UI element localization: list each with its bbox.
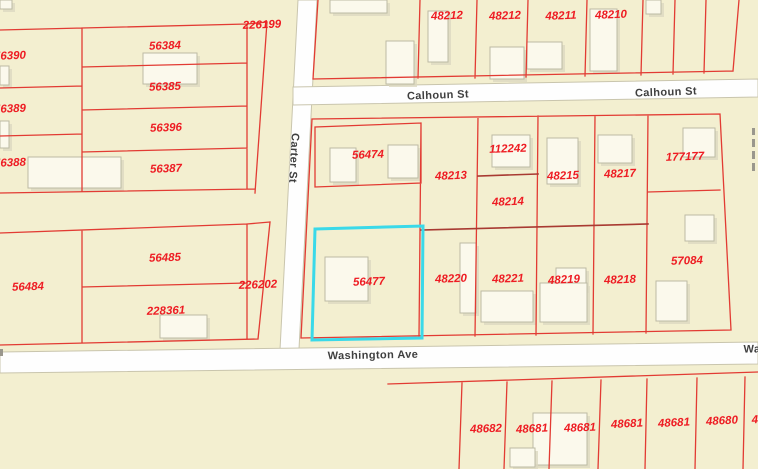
parcel-label-56384[interactable]: 56384 bbox=[149, 41, 181, 54]
parcel-label-56477[interactable]: 56477 bbox=[353, 277, 385, 290]
parcel-label-56389[interactable]: 56389 bbox=[0, 104, 26, 117]
parcel-label-48213[interactable]: 48213 bbox=[435, 171, 467, 184]
street-label-calhoun-st: Calhoun St bbox=[635, 86, 697, 99]
parcel-label-48210[interactable]: 48210 bbox=[595, 10, 627, 23]
parcel-label-48681[interactable]: 48681 bbox=[658, 417, 691, 430]
parcel-label-57084[interactable]: 57084 bbox=[671, 256, 703, 269]
parcel-label-48221[interactable]: 48221 bbox=[492, 274, 524, 287]
parcel-label-48219[interactable]: 48219 bbox=[548, 274, 581, 287]
parcel-label-48681[interactable]: 48681 bbox=[564, 423, 596, 436]
parcel-label-4[interactable]: 4 bbox=[752, 415, 758, 427]
parcel-label-48211[interactable]: 48211 bbox=[545, 11, 577, 24]
parcel-label-48220[interactable]: 48220 bbox=[435, 274, 467, 287]
parcel-label-56396[interactable]: 56396 bbox=[150, 123, 182, 136]
parcel-label-48212[interactable]: 48212 bbox=[489, 11, 521, 24]
street-label-wa: Wa bbox=[743, 344, 758, 355]
parcel-label-177177[interactable]: 177177 bbox=[666, 152, 705, 165]
street-label-carter-st: Carter St bbox=[286, 133, 300, 184]
parcel-label-48215[interactable]: 48215 bbox=[547, 171, 579, 184]
parcel-map-canvas[interactable]: 2261995639056384563855638956396563885638… bbox=[0, 0, 758, 469]
parcel-label-48681[interactable]: 48681 bbox=[516, 423, 549, 436]
parcel-label-48682[interactable]: 48682 bbox=[470, 424, 502, 437]
label-overlay: 2261995639056384563855638956396563885638… bbox=[0, 0, 758, 469]
parcel-label-56385[interactable]: 56385 bbox=[149, 82, 181, 95]
parcel-label-226202[interactable]: 226202 bbox=[239, 280, 278, 293]
parcel-label-48217[interactable]: 48217 bbox=[604, 169, 636, 182]
parcel-label-112242[interactable]: 112242 bbox=[489, 144, 527, 157]
street-label-washington-ave: Washington Ave bbox=[328, 350, 419, 363]
parcel-label-56388[interactable]: 56388 bbox=[0, 158, 26, 171]
street-label-calhoun-st: Calhoun St bbox=[407, 89, 469, 102]
parcel-label-48680[interactable]: 48680 bbox=[706, 415, 739, 428]
parcel-label-228361[interactable]: 228361 bbox=[147, 306, 186, 319]
parcel-label-56387[interactable]: 56387 bbox=[150, 164, 182, 177]
parcel-label-48681[interactable]: 48681 bbox=[611, 418, 644, 431]
parcel-label-56484[interactable]: 56484 bbox=[12, 282, 44, 295]
parcel-label-56485[interactable]: 56485 bbox=[149, 253, 181, 266]
parcel-label-48218[interactable]: 48218 bbox=[604, 275, 636, 288]
parcel-label-226199[interactable]: 226199 bbox=[243, 20, 282, 33]
parcel-label-48212[interactable]: 48212 bbox=[431, 11, 463, 24]
parcel-label-56390[interactable]: 56390 bbox=[0, 51, 26, 64]
parcel-label-56474[interactable]: 56474 bbox=[352, 150, 384, 163]
parcel-label-48214[interactable]: 48214 bbox=[492, 197, 524, 210]
